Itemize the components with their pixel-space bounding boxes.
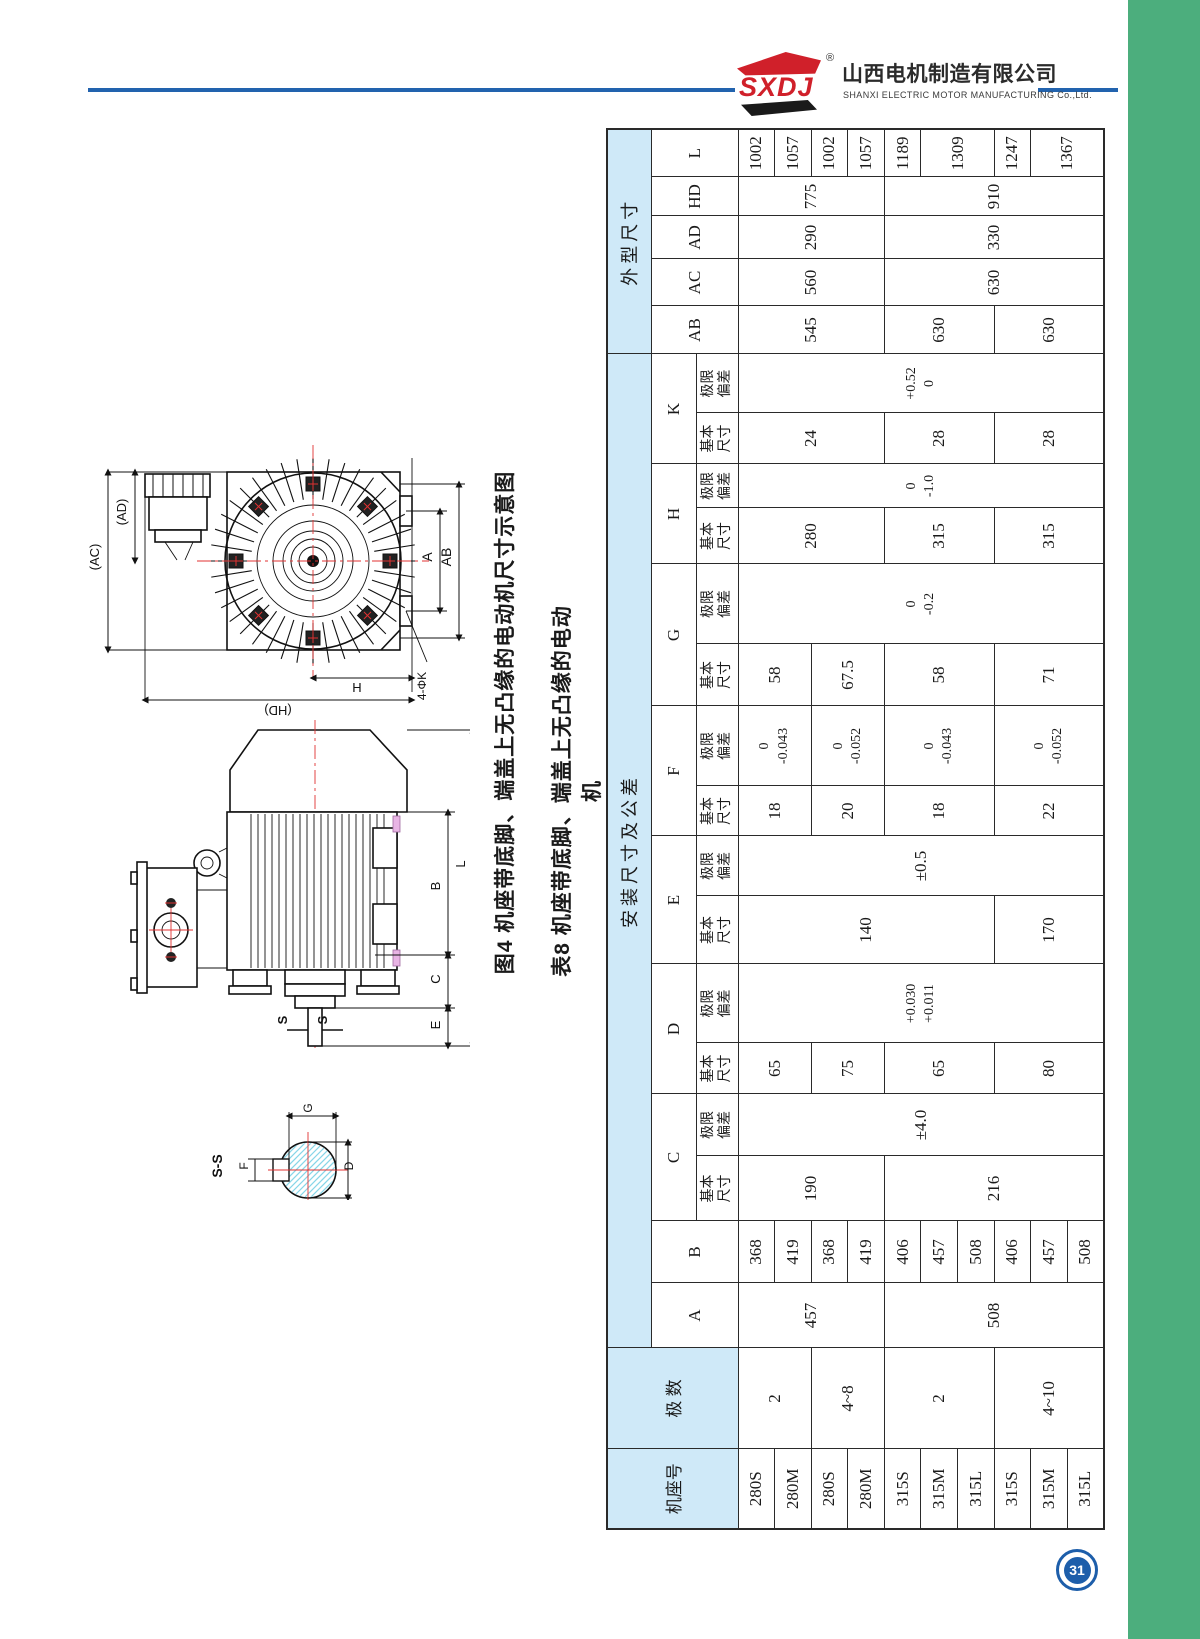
header-deviation-C: 极限 偏差 [696,1094,738,1156]
cell-G-basic: 58 [738,644,811,706]
header-deviation-E: 极限 偏差 [696,836,738,896]
header-poles: 极 数 [607,1348,738,1449]
cell-D-basic: 75 [811,1043,884,1094]
figure-caption: 图4 机座带底脚、端盖上无凸缘的电动机尺寸示意图 [489,415,515,1030]
cell-frame: 315L [958,1449,995,1529]
cell-B: 368 [811,1221,848,1283]
registered-mark: ® [826,52,834,64]
header-deviation-K: 极限 偏差 [696,354,738,413]
cell-F-basic: 18 [738,786,811,836]
page-green-band [1128,0,1200,1639]
header-dim-C: C [651,1094,696,1221]
dim-label-AB: AB [438,548,454,567]
cell-G-basic: 71 [994,644,1104,706]
motor-body [227,812,397,970]
cell-frame: 280M [848,1449,885,1529]
cell-C-basic: 190 [738,1156,884,1221]
header-dim-HD: HD [651,177,738,216]
cell-B: 508 [958,1221,995,1283]
cell-L: 1367 [1031,129,1104,177]
dimension-table-wrapper: 机座号极 数安装尺寸及公差外型尺寸ABCDEFGHKABACADHDL基本 尺寸… [606,130,1103,1530]
dim-label-4phiK: 4-ΦK [415,672,429,700]
header-deviation-H: 极限 偏差 [696,464,738,508]
cell-L: 1057 [848,129,885,177]
cell-D-basic: 80 [994,1043,1104,1094]
cell-E-basic: 170 [994,896,1104,964]
cell-L: 1057 [775,129,812,177]
cell-AD: 330 [884,216,1104,259]
terminal-box-side [131,862,227,993]
header-dim-K: K [651,354,696,464]
cell-G-basic: 58 [884,644,994,706]
side-lug [373,904,397,944]
header-dim-H: H [651,464,696,564]
cell-poles: 2 [884,1348,994,1449]
header-dim-AD: AD [651,216,738,259]
cell-F-dev: 0 -0.052 [994,706,1104,786]
cell-L: 1002 [738,129,775,177]
dim-label-E: E [428,1020,443,1029]
cell-AB: 545 [738,306,884,354]
cell-F-basic: 20 [811,786,884,836]
cell-D-dev: +0.030 +0.011 [738,964,1104,1043]
header-basic-H: 基本 尺寸 [696,508,738,564]
header-basic-C: 基本 尺寸 [696,1156,738,1221]
company-name-en: SHANXI ELECTRIC MOTOR MANUFACTURING Co.,… [843,90,1092,100]
cell-K-basic: 24 [738,413,884,464]
header-deviation-F: 极限 偏差 [696,706,738,786]
header-basic-K: 基本 尺寸 [696,413,738,464]
cell-frame: 280S [811,1449,848,1529]
dim-label-G: G [301,1103,315,1112]
cell-frame: 280M [775,1449,812,1529]
cell-L: 1189 [884,129,921,177]
cell-F-dev: 0 -0.043 [884,706,994,786]
dim-label-F: F [237,1162,251,1169]
cell-B: 368 [738,1221,775,1283]
dim-label-AC: (AC) [87,544,102,571]
company-name-cn: 山西电机制造有限公司 [842,58,1057,88]
cell-HD: 775 [738,177,884,216]
dimension-table: 机座号极 数安装尺寸及公差外型尺寸ABCDEFGHKABACADHDL基本 尺寸… [606,128,1105,1530]
page-number: 31 [1064,1557,1091,1584]
dim-label-A: A [419,552,435,562]
header-dim-L: L [651,129,738,177]
header-basic-F: 基本 尺寸 [696,786,738,836]
header-dim-E: E [651,836,696,964]
cell-B: 419 [848,1221,885,1283]
dim-label-D: D [342,1161,356,1170]
header-dim-AB: AB [651,306,738,354]
cell-frame: 315M [921,1449,958,1529]
cell-L: 1309 [921,129,994,177]
header-dim-F: F [651,706,696,836]
fan-cowl [230,730,407,812]
cell-C-basic: 216 [884,1156,1104,1221]
cell-frame: 315M [1031,1449,1068,1529]
company-logo: SXDJ [735,50,823,118]
header-install-group: 安装尺寸及公差 [607,354,651,1348]
cell-A: 508 [884,1283,1104,1348]
header-dim-D: D [651,964,696,1094]
cell-B: 406 [994,1221,1031,1283]
shaft-section-drawing: G D F S-S [210,1020,360,1200]
section-title: S-S [210,1154,225,1177]
header-dim-A: A [651,1283,738,1348]
cell-poles: 2 [738,1348,811,1449]
dim-label-H: H [352,680,361,695]
cell-frame: 315L [1067,1449,1104,1529]
header-dim-B: B [651,1221,738,1283]
cell-B: 419 [775,1221,812,1283]
cell-K-basic: 28 [994,413,1104,464]
cell-K-basic: 28 [884,413,994,464]
dim-label-AD: (AD) [114,499,129,526]
lifting-eye [194,850,220,876]
header-basic-D: 基本 尺寸 [696,1043,738,1094]
cell-B: 457 [1031,1221,1068,1283]
cell-frame: 315S [994,1449,1031,1529]
cell-frame: 280S [738,1449,775,1529]
cell-B: 508 [1067,1221,1104,1283]
header-frame: 机座号 [607,1449,738,1529]
gasket-mark [393,950,400,966]
cell-G-dev: 0 -0.2 [738,564,1104,644]
cell-F-dev: 0 -0.052 [811,706,884,786]
cell-E-basic: 140 [738,896,994,964]
header-basic-E: 基本 尺寸 [696,896,738,964]
header-dim-AC: AC [651,259,738,306]
cell-AC: 560 [738,259,884,306]
cell-C-dev: ±4.0 [738,1094,1104,1156]
header-deviation-G: 极限 偏差 [696,564,738,644]
cell-K-dev: +0.52 0 [738,354,1104,413]
cell-HD: 910 [884,177,1104,216]
header-outline-group: 外型尺寸 [607,129,651,354]
terminal-box [145,474,210,560]
cell-B: 406 [884,1221,921,1283]
header-deviation-D: 极限 偏差 [696,964,738,1043]
table-caption: 表8 机座带底脚、端盖上无凸缘的电动机 [546,597,572,985]
side-lug [373,828,397,868]
logo-text: SXDJ [739,72,823,103]
motor-side-view-drawing: S S B C E L [115,700,470,1050]
cell-F-basic: 22 [994,786,1104,836]
cell-D-basic: 65 [884,1043,994,1094]
cell-AC: 630 [884,259,1104,306]
cell-AD: 290 [738,216,884,259]
cell-AB: 630 [884,306,994,354]
cell-E-dev: ±0.5 [738,836,1104,896]
gasket-mark [393,816,400,832]
cell-H-dev: 0 -1.0 [738,464,1104,508]
header-dim-G: G [651,564,696,706]
cell-L: 1247 [994,129,1031,177]
cell-B: 457 [921,1221,958,1283]
cell-D-basic: 65 [738,1043,811,1094]
header-basic-G: 基本 尺寸 [696,644,738,706]
cell-poles: 4~10 [994,1348,1104,1449]
cell-AB: 630 [994,306,1104,354]
dim-label-B: B [428,882,443,891]
cell-A: 457 [738,1283,884,1348]
motor-end-view-drawing: (AC) (AD) A AB H (HD) 4-ΦK [85,400,465,725]
cell-H-basic: 315 [884,508,994,564]
page-number-badge: 31 [1056,1549,1098,1591]
cell-F-basic: 18 [884,786,994,836]
cell-H-basic: 280 [738,508,884,564]
cell-frame: 315S [884,1449,921,1529]
cell-F-dev: 0 -0.043 [738,706,811,786]
cell-G-basic: 67.5 [811,644,884,706]
cell-poles: 4~8 [811,1348,884,1449]
cell-H-basic: 315 [994,508,1104,564]
dim-label-C: C [428,974,443,983]
cell-L: 1002 [811,129,848,177]
header-rule-left [88,88,735,92]
dim-label-L: L [453,860,468,867]
